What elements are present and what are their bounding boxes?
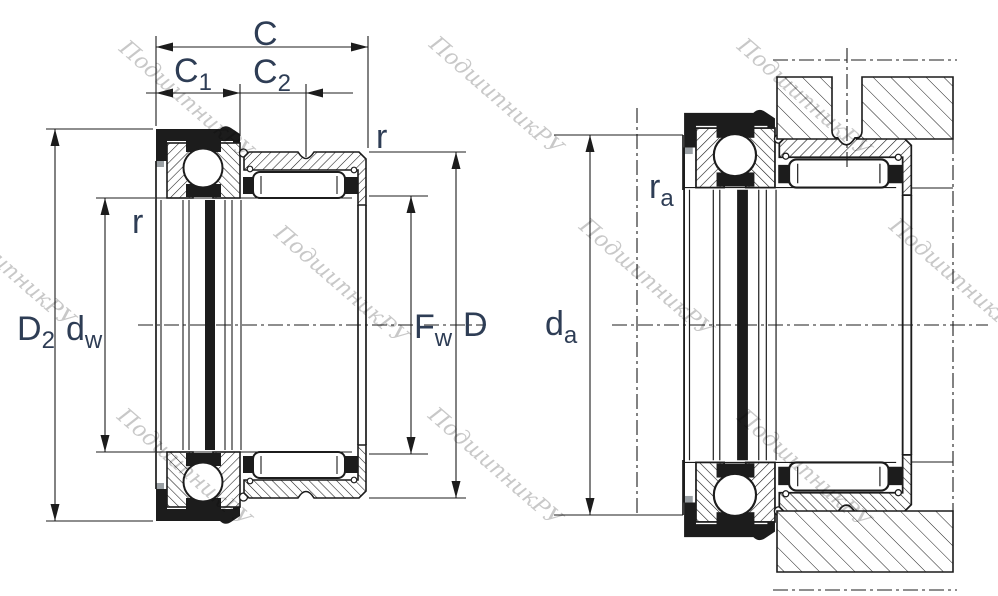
bearing-technical-drawing: C C1 C2 D2 dw xyxy=(0,0,998,596)
dim-label-c: C xyxy=(253,15,278,53)
dim-label-r-inner: r xyxy=(132,203,143,241)
dim-label-d: D xyxy=(463,306,488,344)
technical-drawing-canvas: C C1 C2 D2 dw xyxy=(0,0,998,596)
dim-label-r-outer: r xyxy=(376,118,387,156)
